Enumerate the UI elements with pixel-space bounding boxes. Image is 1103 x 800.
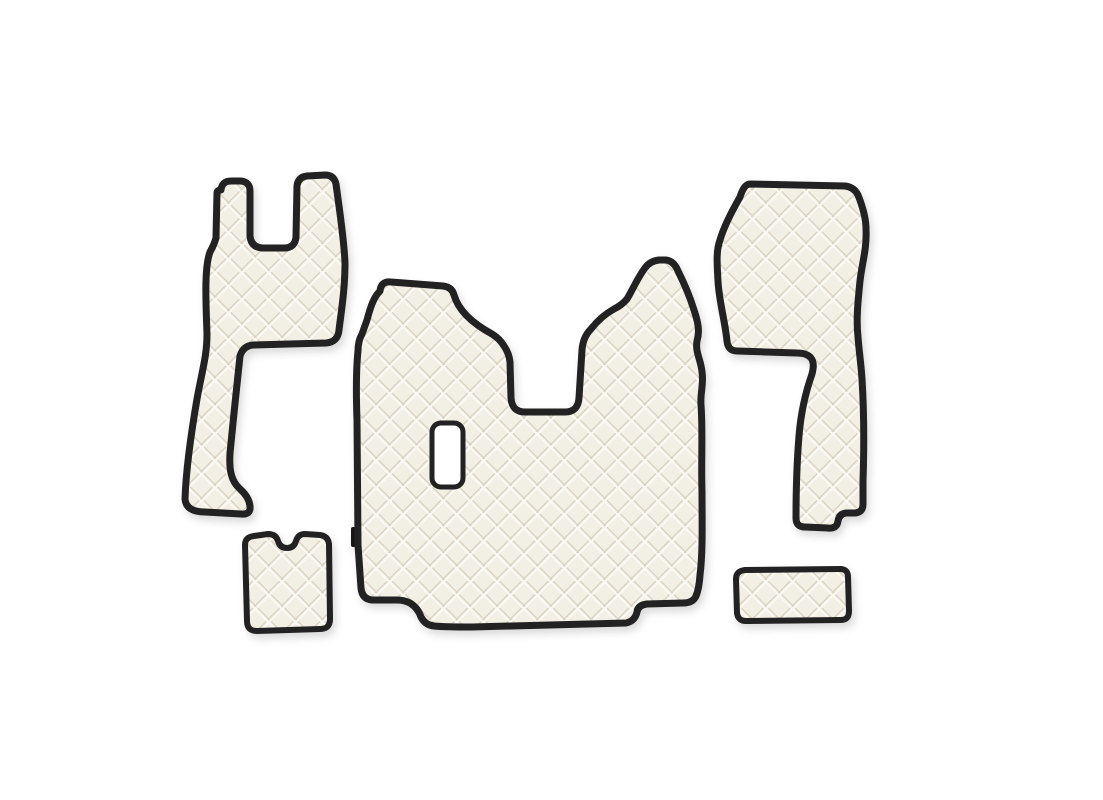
center-tunnel-mat [356,260,702,627]
small-notched-mat [245,534,330,631]
right-floor-mat [717,184,866,528]
mat-set [185,175,866,631]
small-rectangle-mat [736,569,849,621]
left-floor-mat [185,175,345,514]
product-photo [0,0,1103,800]
gearbox-cutout [432,423,463,487]
floor-mat-set-illustration [0,0,1103,800]
